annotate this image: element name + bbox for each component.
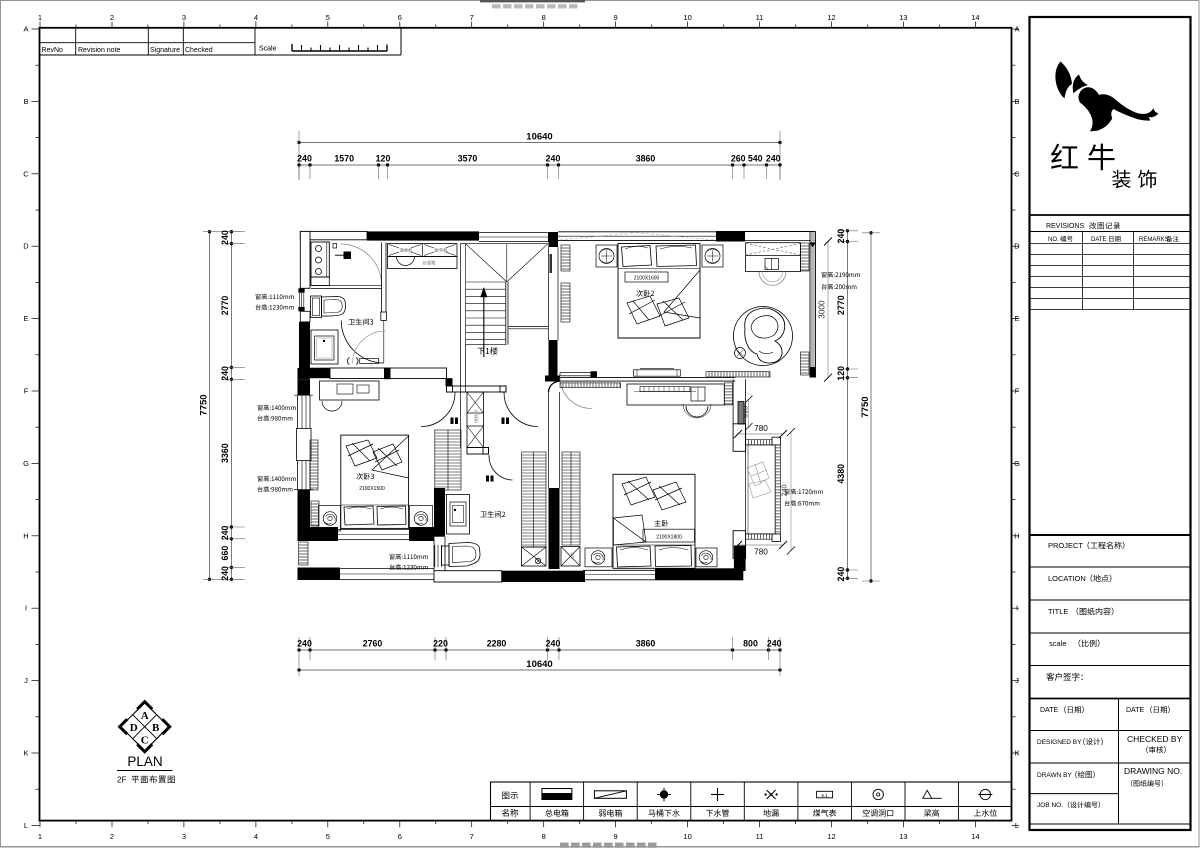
svg-text:DATE: DATE <box>1091 237 1107 243</box>
svg-text:JOB NO.: JOB NO. <box>1037 802 1063 809</box>
svg-text:1570: 1570 <box>334 154 354 164</box>
svg-text:800: 800 <box>743 639 758 649</box>
svg-text:F: F <box>24 387 29 396</box>
svg-text:DATE: DATE <box>1040 707 1058 714</box>
svg-text:Checked: Checked <box>185 47 213 54</box>
svg-text:DRAWING NO.: DRAWING NO. <box>1124 766 1182 776</box>
svg-text:240: 240 <box>220 230 230 245</box>
svg-text:A: A <box>23 25 28 34</box>
svg-text:B: B <box>152 722 160 734</box>
svg-text:5: 5 <box>326 832 330 841</box>
svg-text:9: 9 <box>614 13 618 22</box>
svg-text:240: 240 <box>766 154 781 164</box>
svg-text:120: 120 <box>836 366 846 381</box>
svg-text:NO.: NO. <box>1048 237 1059 243</box>
svg-text:J: J <box>24 676 28 685</box>
svg-text:L: L <box>24 821 28 830</box>
svg-text:3570: 3570 <box>458 154 478 164</box>
svg-text:260: 260 <box>731 154 746 164</box>
svg-text:240: 240 <box>297 154 312 164</box>
svg-text:DATE: DATE <box>1126 707 1144 714</box>
svg-text:2100X1800: 2100X1800 <box>656 535 682 541</box>
svg-text:660: 660 <box>220 546 230 561</box>
svg-text:240: 240 <box>836 229 846 244</box>
svg-text:10: 10 <box>683 13 691 22</box>
svg-text:7750: 7750 <box>860 396 871 417</box>
svg-text:B: B <box>23 97 28 106</box>
svg-text:2770: 2770 <box>836 295 846 315</box>
svg-text:780: 780 <box>754 424 768 433</box>
svg-text:4: 4 <box>254 832 258 841</box>
svg-text:13: 13 <box>899 13 907 22</box>
svg-text:8: 8 <box>542 832 546 841</box>
svg-text:REVISIONS: REVISIONS <box>1046 223 1084 230</box>
svg-text:CHECKED BY: CHECKED BY <box>1127 734 1183 744</box>
svg-text:11: 11 <box>756 832 764 841</box>
svg-text:7750: 7750 <box>199 394 210 415</box>
svg-text:C: C <box>141 735 149 747</box>
svg-text:8: 8 <box>542 13 546 22</box>
svg-text:5: 5 <box>326 13 330 22</box>
svg-text:2770: 2770 <box>220 296 230 316</box>
svg-text:G: G <box>23 459 29 468</box>
svg-text:1: 1 <box>38 13 42 22</box>
svg-text:3: 3 <box>182 832 186 841</box>
svg-text:2280: 2280 <box>487 639 507 649</box>
svg-text:1: 1 <box>38 832 42 841</box>
svg-text:E: E <box>23 314 28 323</box>
svg-text:3360: 3360 <box>220 443 230 463</box>
svg-text:4: 4 <box>254 13 258 22</box>
svg-text:3: 3 <box>182 13 186 22</box>
svg-text:2760: 2760 <box>363 639 383 649</box>
svg-text:7: 7 <box>470 832 474 841</box>
svg-text:LOCATION: LOCATION <box>1048 574 1086 583</box>
svg-text:Scale: Scale <box>259 46 277 53</box>
svg-text:scale: scale <box>1049 639 1067 648</box>
svg-text:6: 6 <box>398 832 402 841</box>
svg-text:Signature: Signature <box>150 47 180 54</box>
svg-text:11: 11 <box>756 13 764 22</box>
svg-text:10640: 10640 <box>526 132 552 143</box>
svg-text:2: 2 <box>110 13 114 22</box>
svg-text:7: 7 <box>470 13 474 22</box>
svg-text:C: C <box>23 169 29 178</box>
svg-text:12: 12 <box>827 13 835 22</box>
svg-text:10640: 10640 <box>526 659 552 670</box>
svg-text:10: 10 <box>683 832 691 841</box>
svg-text:9: 9 <box>614 832 618 841</box>
svg-text:240: 240 <box>836 567 846 582</box>
svg-text:3860: 3860 <box>636 154 656 164</box>
svg-text:240: 240 <box>220 525 230 540</box>
svg-text:Revision note: Revision note <box>78 47 121 54</box>
svg-text:240: 240 <box>546 639 561 649</box>
svg-text:220: 220 <box>433 639 448 649</box>
svg-text:A: A <box>141 710 149 722</box>
svg-text:3860: 3860 <box>636 639 656 649</box>
svg-text:4380: 4380 <box>836 464 846 484</box>
svg-text:RevNo: RevNo <box>42 47 64 54</box>
svg-text:14: 14 <box>971 13 979 22</box>
svg-text:240: 240 <box>767 639 782 649</box>
svg-text:2F: 2F <box>117 776 126 785</box>
svg-text:H: H <box>23 531 28 540</box>
svg-text:DESIGNED BY: DESIGNED BY <box>1037 739 1082 746</box>
svg-text:2: 2 <box>110 832 114 841</box>
svg-text:DRAWN BY: DRAWN BY <box>1037 772 1072 779</box>
svg-text:REMARKS: REMARKS <box>1139 237 1169 243</box>
svg-text:PLAN: PLAN <box>127 754 162 769</box>
svg-text:3000: 3000 <box>818 300 827 319</box>
svg-text:12: 12 <box>827 832 835 841</box>
svg-text:13: 13 <box>899 832 907 841</box>
svg-text:6: 6 <box>398 13 402 22</box>
svg-text:240: 240 <box>780 485 789 497</box>
svg-text:2100X1600: 2100X1600 <box>634 276 660 282</box>
svg-text:14: 14 <box>971 832 979 841</box>
svg-text:I: I <box>25 604 27 613</box>
svg-text:240: 240 <box>220 566 230 581</box>
svg-text:540: 540 <box>748 154 763 164</box>
svg-text:D: D <box>23 242 29 251</box>
svg-text:240: 240 <box>297 639 312 649</box>
svg-text:6.1: 6.1 <box>821 793 828 798</box>
svg-text:TITLE: TITLE <box>1048 607 1068 616</box>
svg-text:PROJECT: PROJECT <box>1048 541 1083 550</box>
svg-text:K: K <box>23 749 28 758</box>
svg-text:120: 120 <box>376 154 391 164</box>
svg-text:2100X1500: 2100X1500 <box>359 486 385 492</box>
svg-text:D: D <box>130 722 138 734</box>
svg-text:240: 240 <box>546 154 561 164</box>
svg-text:240: 240 <box>220 366 230 381</box>
svg-text:780: 780 <box>754 548 768 557</box>
